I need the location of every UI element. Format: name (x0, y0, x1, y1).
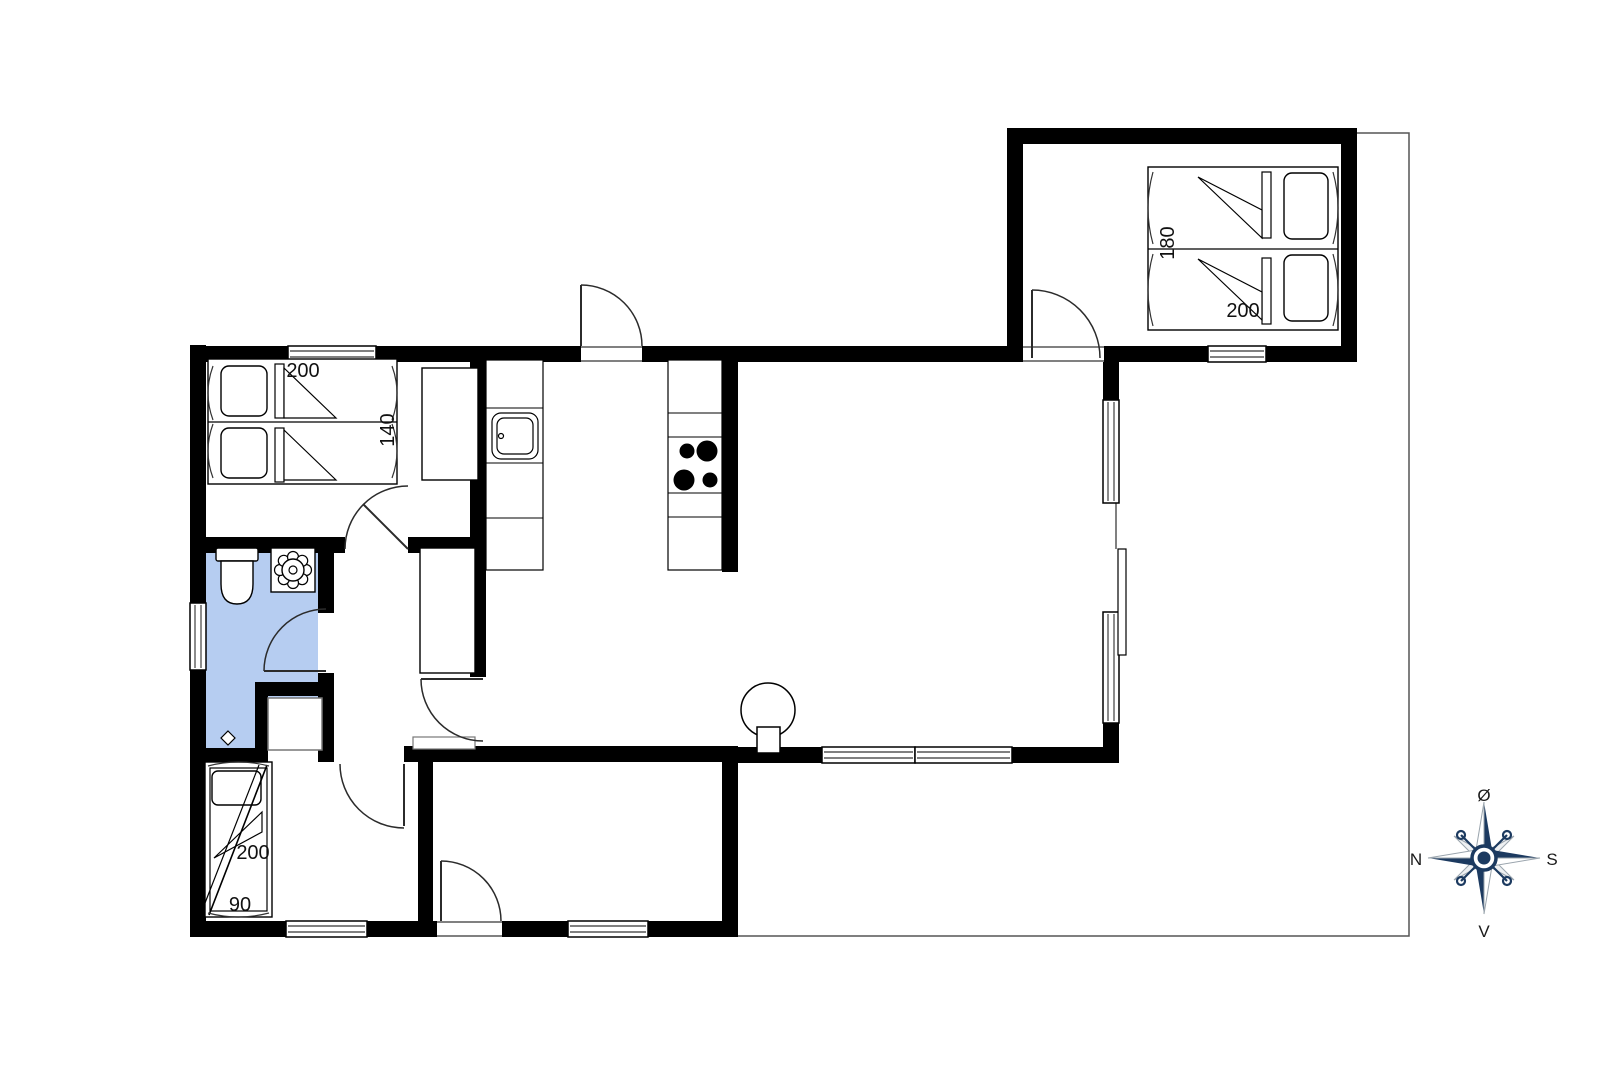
bed1-length-label: 200 (286, 360, 319, 382)
bedroom3-door-swing (340, 764, 404, 828)
window (915, 747, 1012, 763)
sink-icon (271, 548, 315, 592)
wardrobe (422, 368, 478, 480)
window (822, 747, 915, 763)
bed3-width-label: 90 (229, 894, 251, 916)
entrance-door-swing (581, 285, 642, 361)
bed3-length-label: 200 (236, 842, 269, 864)
shower-cubicle (268, 698, 322, 750)
pillow (221, 366, 267, 416)
pillow (221, 428, 267, 478)
window (1103, 612, 1119, 723)
bedroom2-door-swing (1023, 290, 1104, 361)
compass-west-label: V (1478, 922, 1490, 941)
kitchen-sink-icon (492, 413, 538, 459)
toilet-icon (216, 548, 258, 604)
hall-door-swing (421, 679, 483, 741)
pillow (1284, 173, 1328, 239)
bed2-length-label: 200 (1226, 300, 1259, 322)
kitchen-counter-left (486, 360, 543, 570)
kitchen-counter-right (668, 360, 722, 570)
wardrobe (420, 548, 475, 673)
window (286, 921, 367, 937)
compass-east-label: Ø (1477, 786, 1490, 805)
compass-south-label: S (1546, 850, 1557, 869)
window (1208, 346, 1266, 362)
floor-plan-svg: 200 140 180 200 200 90 (0, 0, 1600, 1066)
window (1103, 400, 1119, 503)
bed1-width-label: 140 (377, 413, 399, 446)
wood-stove-icon (741, 683, 795, 753)
bedroom1-door-swing (345, 486, 408, 549)
bed2-width-label: 180 (1157, 226, 1179, 259)
sliding-door (1116, 503, 1126, 655)
window (568, 921, 648, 937)
compass-north-label: N (1410, 850, 1422, 869)
window (190, 603, 206, 670)
pillow (1284, 255, 1328, 321)
floor-plan: 200 140 180 200 200 90 (0, 0, 1600, 1066)
rear-entrance-door-swing (437, 861, 502, 936)
compass-rose: Ø S V N (1410, 786, 1558, 941)
